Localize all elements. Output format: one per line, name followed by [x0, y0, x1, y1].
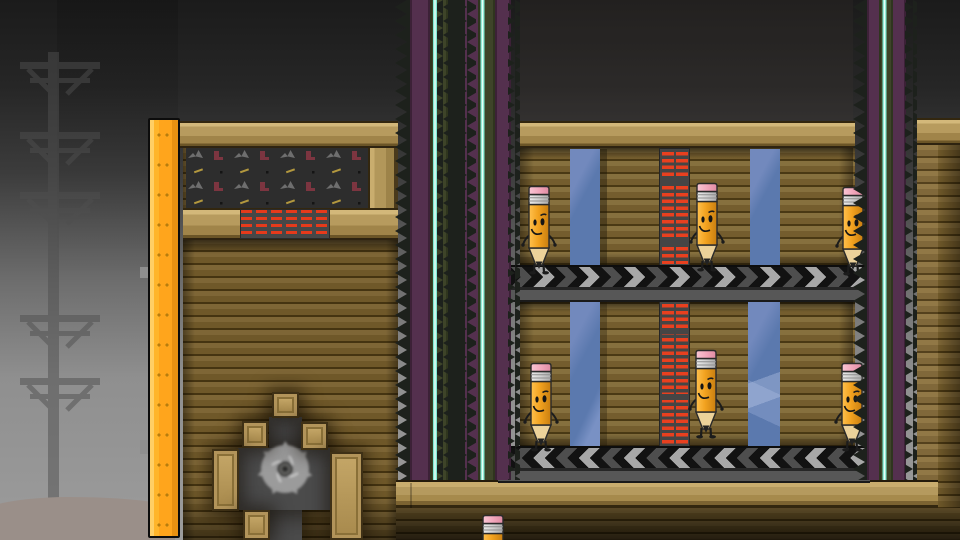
drill-column-right: [853, 0, 917, 480]
power-pole-silhouette: [8, 52, 118, 540]
crate-panel: [248, 515, 265, 535]
belt-chevrons: [498, 458, 870, 468]
red-vent-grill: [240, 209, 330, 239]
blue-panel: [570, 302, 600, 447]
wooden-crate: [242, 421, 268, 448]
floor-beam: [396, 480, 938, 508]
dark-doodle-panel: [186, 148, 368, 208]
wooden-crate: [212, 449, 239, 511]
vent-gap: [661, 239, 688, 245]
belt-body: [498, 290, 870, 300]
ceiling-beam-left: [180, 121, 398, 148]
panel-shadow: [600, 302, 607, 447]
vent-bars: [662, 152, 674, 264]
vent-gap: [661, 179, 688, 185]
pencil-7[interactable]: [473, 513, 513, 540]
beam-shadow: [183, 240, 398, 254]
crate-panel: [217, 454, 234, 506]
belt-edge: [498, 300, 870, 302]
wooden-crate: [330, 452, 363, 540]
pencil-sprite: [521, 361, 561, 457]
wall-beam-vertical: [368, 148, 398, 210]
game-viewport[interactable]: [0, 0, 960, 540]
crate-panel: [247, 426, 263, 443]
belt-body: [498, 471, 870, 481]
pencil-1[interactable]: [519, 184, 559, 280]
pencil-sprite: [519, 184, 559, 280]
vent-gap: [661, 328, 688, 334]
floor-beam-step: [410, 483, 412, 508]
pencil-sprite: [687, 181, 727, 277]
pencil-2[interactable]: [687, 181, 727, 277]
yellow-pole: [148, 118, 180, 538]
wooden-crate: [243, 510, 270, 540]
panel-shadow: [600, 149, 607, 267]
wooden-crate: [272, 392, 299, 418]
vent-bars: [662, 304, 674, 444]
wooden-crate: [301, 422, 328, 450]
crate-panel: [277, 397, 294, 413]
ceiling-beam-right: [917, 118, 960, 145]
pencil-sprite: [686, 348, 726, 444]
ceiling-beam-middle: [520, 121, 855, 148]
factory-top-dark: [520, 0, 853, 121]
blue-panel: [748, 302, 780, 447]
blue-panel: [750, 149, 780, 267]
pencil-sprite: [473, 513, 513, 540]
pencil-5[interactable]: [686, 348, 726, 444]
crate-panel: [335, 457, 358, 535]
drill-column-left: [395, 0, 520, 480]
vent-gap: [661, 394, 688, 400]
red-vent-tower: [659, 148, 690, 267]
crate-panel: [306, 427, 323, 445]
right-wood-post: [917, 145, 938, 510]
blue-panel: [570, 149, 600, 267]
pencil-4[interactable]: [521, 361, 561, 457]
wall-shadow: [938, 145, 960, 540]
belt-edge: [498, 481, 870, 483]
